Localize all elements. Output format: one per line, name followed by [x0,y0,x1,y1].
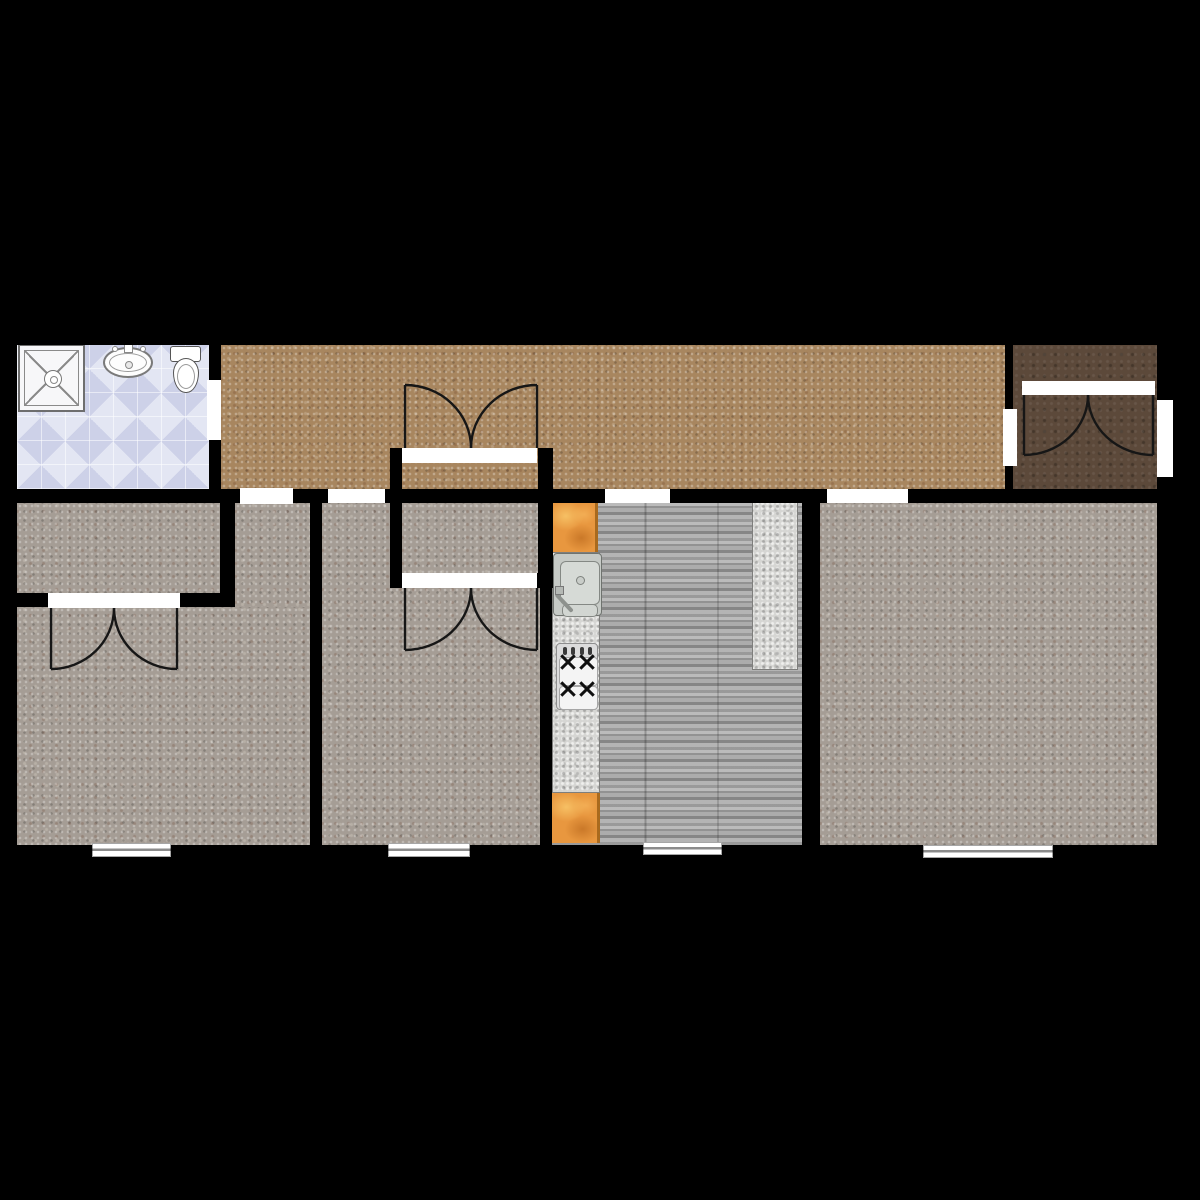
entry-room-floor [1013,344,1160,493]
center-bedroom-west-wall [310,503,322,845]
cutting-board-bottom [552,793,600,843]
entry-opening-west [1003,409,1017,466]
stove-knob-icon [563,647,567,655]
stove-burner-icon [579,681,595,697]
sink-drain-icon [125,361,133,369]
left-bedroom-opening [240,488,293,504]
hall-closet-east-wall [538,448,553,588]
living-room-floor [820,503,1157,845]
left-closet-doorway [48,593,180,608]
left-bedroom-floor [17,607,310,845]
kitchen-east-wall [802,503,820,845]
entry-exterior-door-opening [1157,400,1173,477]
left-bedroom-alcove-floor [235,503,310,613]
shower-drain-icon [44,370,62,388]
stove-burner-icon [560,681,576,697]
hall-closet-west-wall [390,448,402,588]
stove-knob-icon [580,647,584,655]
kitchen-sink-drain-icon [576,576,585,585]
left-closet-floor [17,503,220,593]
kitchen-opening [605,489,670,503]
hall-closet-floor [402,503,538,573]
bathroom-door-opening [207,380,221,440]
bathroom-sink-handle-left [112,346,118,352]
stove [556,643,598,710]
cutting-board-top [552,502,598,552]
exterior-wall-top [10,330,1172,345]
stove-knob-icon [571,647,575,655]
hall-closet-north-doorway [402,448,537,463]
left-closet-east-wall [220,503,235,607]
kitchen-west-wall [540,588,552,845]
stove-burner-icon [560,654,576,670]
center-bedroom-opening [328,489,385,503]
hallway-floor [221,345,1005,489]
kitchen-side-counter [752,502,798,670]
shower [18,344,85,412]
toilet-seat [177,364,195,389]
bathroom-sink-handle-right [140,346,146,352]
hall-closet-south-doorway [402,573,537,588]
kitchen-window [643,842,722,855]
kitchen-sink-knob [555,586,564,595]
hallway-south-wall [15,489,1172,503]
living-room-window [923,845,1053,858]
living-room-opening [827,489,908,503]
entry-closet-doorway [1022,381,1155,395]
stove-knob-icon [588,647,592,655]
stove-burner-icon [579,654,595,670]
center-bedroom-window [388,843,470,857]
left-bedroom-window [92,843,171,857]
floor-plan [0,0,1200,1200]
kitchen-sink [553,553,602,616]
